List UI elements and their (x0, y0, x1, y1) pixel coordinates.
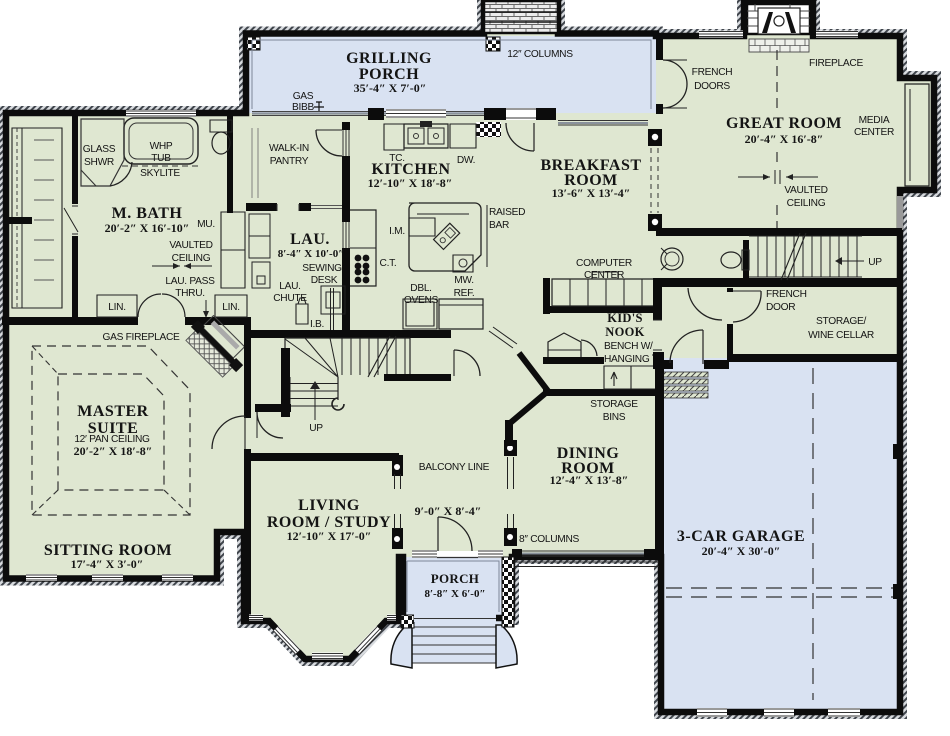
svg-text:8′-4″ X 10′-0″: 8′-4″ X 10′-0″ (278, 248, 345, 260)
svg-text:TC.: TC. (389, 153, 405, 164)
svg-text:FRENCH: FRENCH (692, 67, 733, 78)
svg-text:LAU. PASS: LAU. PASS (165, 276, 215, 287)
svg-text:GRILLING: GRILLING (346, 50, 432, 67)
svg-text:LIVING: LIVING (298, 497, 360, 514)
svg-text:LAU.: LAU. (290, 231, 330, 248)
svg-text:STORAGE/: STORAGE/ (816, 316, 867, 327)
svg-text:COMPUTER: COMPUTER (576, 258, 632, 269)
svg-text:THRU.: THRU. (175, 288, 205, 299)
svg-text:GAS: GAS (293, 91, 314, 102)
svg-text:CENTER: CENTER (854, 127, 894, 138)
svg-text:LIN.: LIN. (108, 302, 125, 313)
svg-text:KID'S: KID'S (607, 311, 643, 325)
svg-text:VAULTED: VAULTED (784, 185, 827, 196)
svg-text:8′-8″ X 6′-0″: 8′-8″ X 6′-0″ (424, 588, 485, 600)
svg-text:BIBB: BIBB (292, 102, 315, 113)
svg-text:NOOK: NOOK (605, 325, 644, 339)
svg-text:BAR: BAR (489, 220, 509, 231)
svg-text:MEDIA: MEDIA (859, 115, 890, 126)
svg-text:I.M.: I.M. (389, 226, 405, 237)
svg-text:VAULTED: VAULTED (169, 240, 212, 251)
svg-text:SKYLITE: SKYLITE (140, 168, 180, 179)
svg-text:FRENCH: FRENCH (766, 289, 807, 300)
svg-text:GAS FIREPLACE: GAS FIREPLACE (102, 332, 180, 343)
svg-text:8″ COLUMNS: 8″ COLUMNS (519, 534, 580, 545)
svg-text:WALK-IN: WALK-IN (269, 143, 309, 154)
svg-text:12″ COLUMNS: 12″ COLUMNS (507, 49, 573, 60)
svg-text:M. BATH: M. BATH (112, 205, 183, 222)
svg-text:RAISED: RAISED (489, 207, 525, 218)
svg-text:20′-2″ X 16′-10″: 20′-2″ X 16′-10″ (105, 221, 190, 235)
svg-text:LIN.: LIN. (222, 302, 239, 313)
svg-text:SHWR: SHWR (84, 157, 114, 168)
svg-text:BINS: BINS (603, 412, 626, 423)
svg-text:WHP: WHP (150, 141, 173, 152)
svg-text:C.T.: C.T. (380, 258, 397, 269)
svg-text:OVENS: OVENS (404, 295, 439, 306)
svg-text:CEILING: CEILING (787, 198, 826, 209)
svg-text:DW.: DW. (457, 155, 475, 166)
svg-text:TUB: TUB (151, 153, 171, 164)
svg-text:SEWING: SEWING (302, 263, 342, 274)
svg-text:20′-2″ X 18′-8″: 20′-2″ X 18′-8″ (74, 444, 153, 458)
svg-text:LAU.: LAU. (279, 281, 300, 292)
svg-text:20′-4″ X 16′-8″: 20′-4″ X 16′-8″ (745, 132, 824, 146)
svg-text:13′-6″ X 13′-4″: 13′-6″ X 13′-4″ (552, 186, 631, 200)
svg-text:WINE CELLAR: WINE CELLAR (808, 330, 874, 341)
svg-text:HANGING: HANGING (604, 354, 650, 365)
svg-text:12′-10″ X 17′-0″: 12′-10″ X 17′-0″ (287, 529, 372, 543)
svg-text:CEILING: CEILING (172, 253, 211, 264)
svg-text:MW.: MW. (454, 275, 473, 286)
svg-text:3-CAR GARAGE: 3-CAR GARAGE (677, 528, 805, 545)
svg-text:UP: UP (868, 257, 882, 268)
svg-text:DOORS: DOORS (694, 81, 730, 92)
svg-text:UP: UP (309, 423, 323, 434)
svg-text:DESK: DESK (311, 275, 338, 286)
svg-text:I.B.: I.B. (310, 319, 324, 330)
svg-text:STORAGE: STORAGE (590, 399, 638, 410)
svg-text:CENTER: CENTER (584, 270, 624, 281)
svg-text:17′-4″ X 3′-0″: 17′-4″ X 3′-0″ (71, 557, 144, 571)
svg-text:PORCH: PORCH (431, 571, 479, 586)
svg-text:12′-10″ X 18′-8″: 12′-10″ X 18′-8″ (368, 176, 453, 190)
svg-text:35′-4″ X 7′-0″: 35′-4″ X 7′-0″ (354, 81, 427, 95)
svg-text:BENCH W/: BENCH W/ (604, 341, 653, 352)
svg-text:MASTER: MASTER (77, 403, 148, 420)
svg-text:MU.: MU. (197, 219, 215, 230)
svg-text:REF.: REF. (454, 288, 475, 299)
svg-text:DBL.: DBL. (410, 283, 431, 294)
svg-text:GLASS: GLASS (83, 144, 116, 155)
svg-text:DOOR: DOOR (766, 302, 795, 313)
svg-text:12′-4″ X 13′-8″: 12′-4″ X 13′-8″ (550, 473, 629, 487)
svg-text:9′-0″ X 8′-4″: 9′-0″ X 8′-4″ (415, 504, 482, 518)
svg-text:GREAT ROOM: GREAT ROOM (726, 115, 842, 132)
svg-text:BALCONY LINE: BALCONY LINE (419, 462, 490, 473)
svg-text:20′-4″ X 30′-0″: 20′-4″ X 30′-0″ (702, 544, 781, 558)
svg-text:FIREPLACE: FIREPLACE (809, 58, 863, 69)
svg-text:PANTRY: PANTRY (270, 156, 309, 167)
